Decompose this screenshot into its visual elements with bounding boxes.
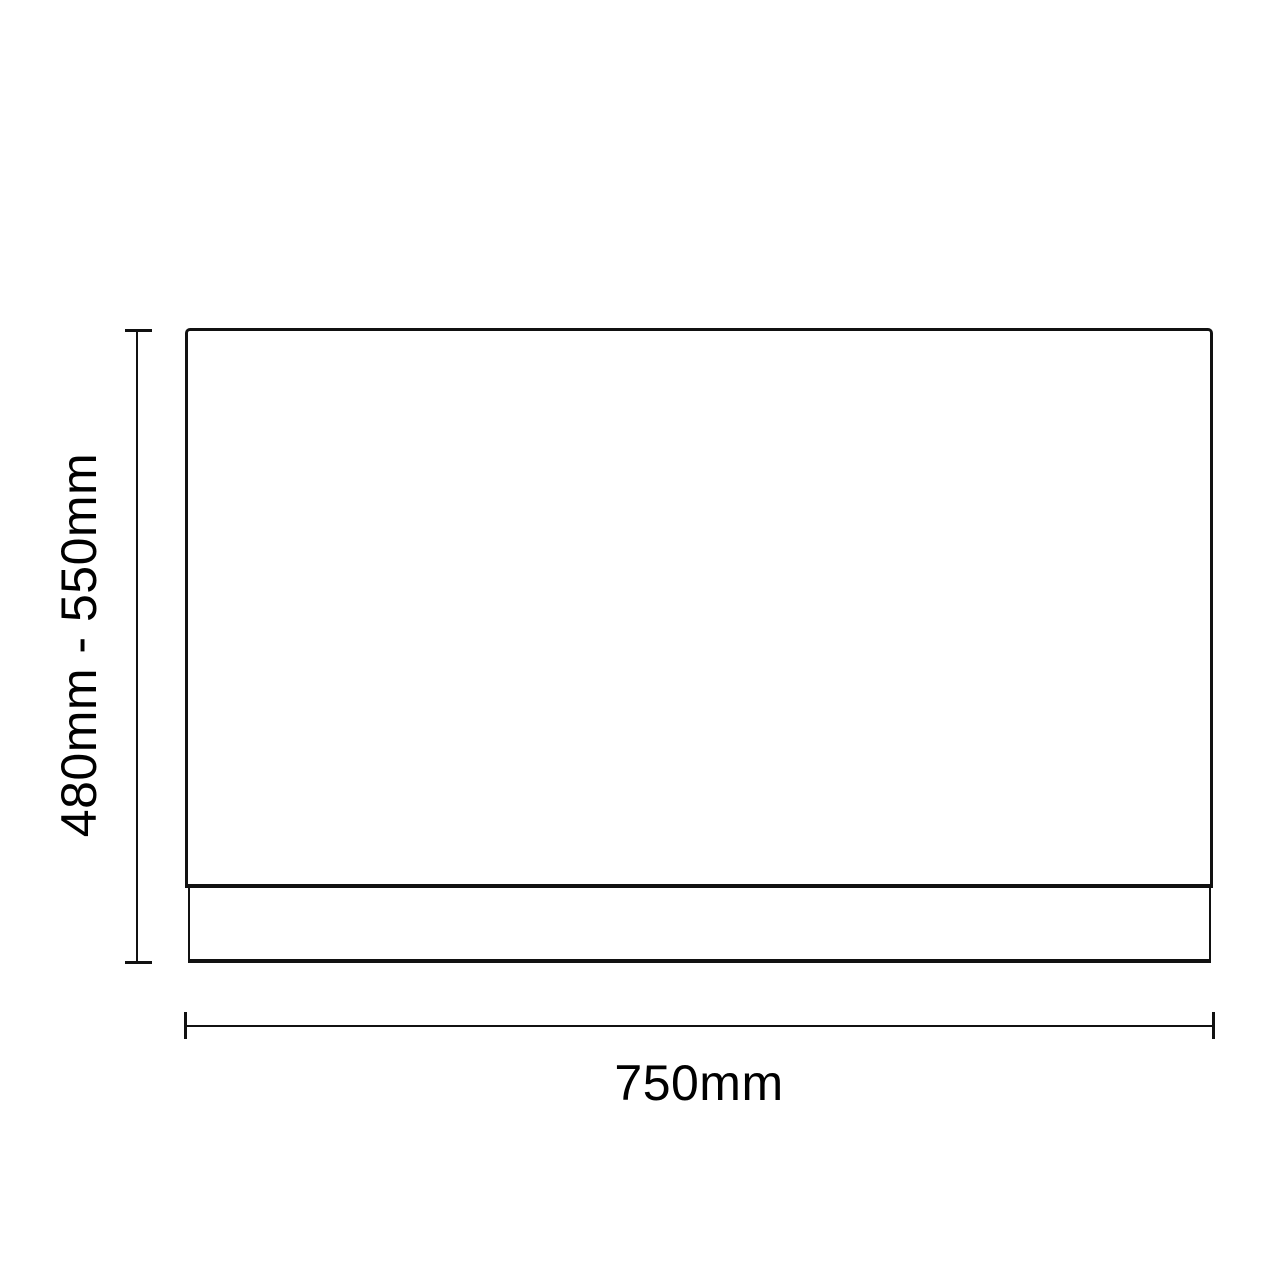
- width-dimension-tick-right: [1212, 1012, 1215, 1039]
- panel-body-outline: [185, 328, 1213, 888]
- dimension-diagram: 480mm - 550mm 750mm: [0, 0, 1280, 1280]
- height-dimension-tick-top: [125, 329, 152, 332]
- width-dimension-line: [185, 1025, 1215, 1027]
- width-dimension-tick-left: [184, 1012, 187, 1039]
- height-dimension-line: [136, 330, 138, 963]
- panel-plinth-outline: [188, 888, 1211, 963]
- width-dimension-label: 750mm: [614, 1058, 783, 1108]
- height-dimension-tick-bottom: [125, 961, 152, 964]
- height-dimension-label: 480mm - 550mm: [54, 453, 104, 837]
